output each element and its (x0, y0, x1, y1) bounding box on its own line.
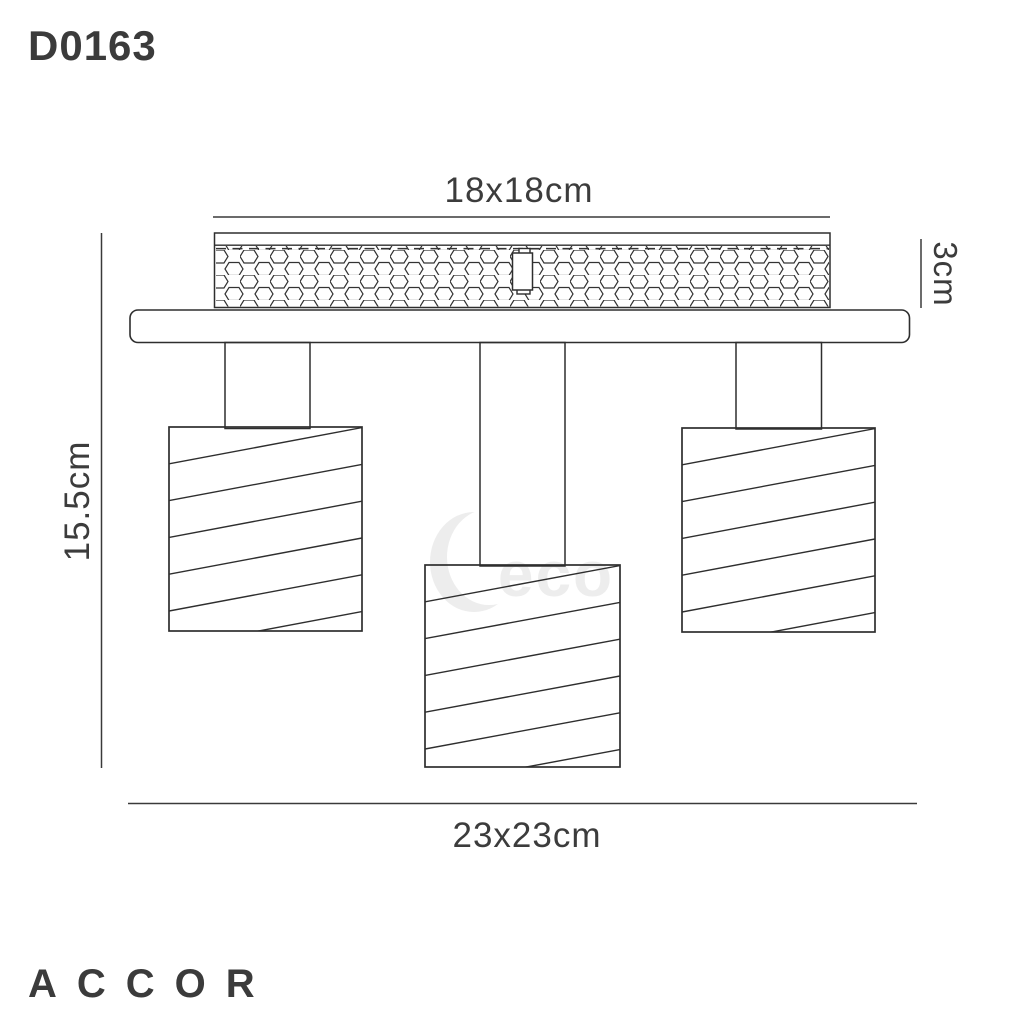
canopy-plate (215, 233, 831, 308)
stem-right (736, 343, 822, 430)
diagram-canvas: D0163 eco (0, 0, 1024, 1024)
dimension-label-canopy-depth: 3cm (926, 241, 964, 306)
fixture-technical-drawing: eco (0, 0, 1024, 1024)
watermark: eco (430, 509, 614, 612)
shade-right (682, 428, 875, 649)
brand-logo: ACCOR (28, 962, 275, 1007)
dimension-label-canopy-width: 18x18cm (444, 171, 593, 211)
stem-left (225, 343, 310, 429)
shade-left (169, 427, 362, 648)
dimension-label-fixture-height: 15.5cm (58, 441, 98, 562)
watermark-text: eco (498, 538, 614, 610)
base-plate (130, 310, 910, 343)
dimension-label-overall-width: 23x23cm (452, 816, 601, 856)
mounting-bracket (513, 253, 533, 290)
